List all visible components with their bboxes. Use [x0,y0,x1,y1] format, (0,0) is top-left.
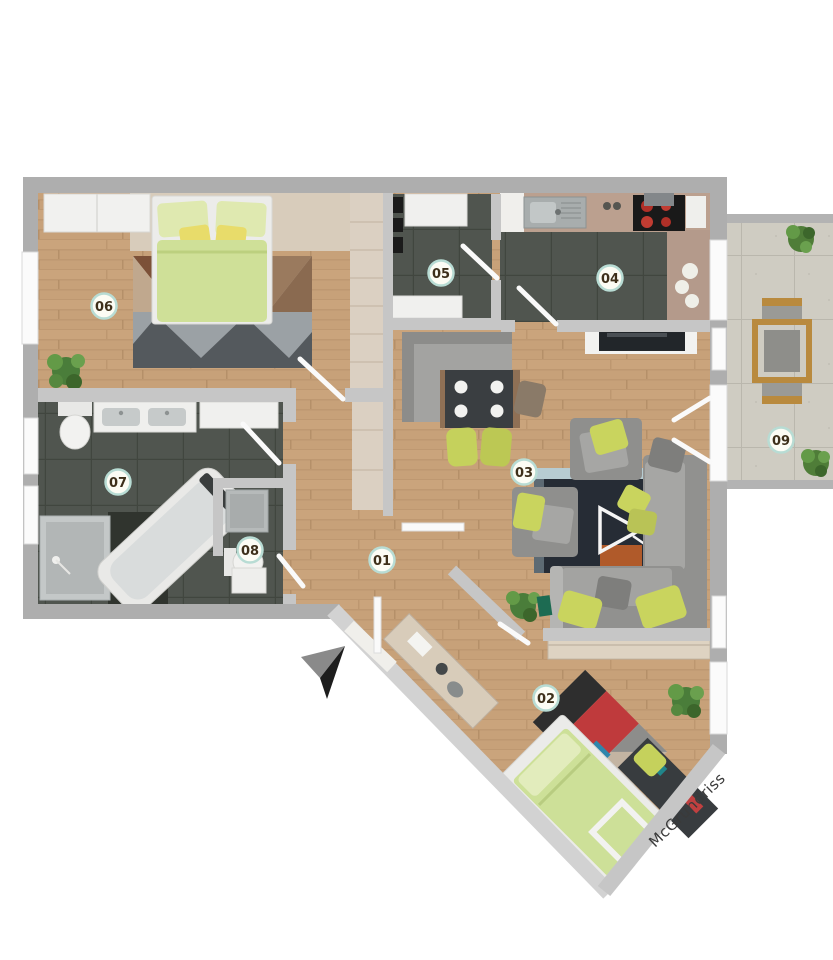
decor-plate [682,263,698,279]
window [710,662,727,734]
door-leaf-living [402,523,464,531]
balcony-door-living [710,385,727,481]
entry-door-leaf [374,597,381,653]
balcony-wall-top [727,214,833,223]
room-number: 06 [95,300,113,315]
north-arrow-icon [301,646,345,699]
wc-basin-cabinet [232,568,266,593]
room-label-06: 06 [92,294,117,319]
room-number: 01 [373,554,391,569]
kitchen-floor [500,230,668,322]
toilet [58,402,92,449]
room-number: 08 [241,544,259,559]
armchair-left [512,487,578,557]
room-label-01: 01 [370,548,395,573]
cabinet [405,194,467,226]
room-number: 02 [537,692,555,707]
decor-plate [685,294,699,308]
room-label-05: 05 [429,261,454,286]
room-label-08: 08 [238,538,263,563]
floor-plan: 01 02 03 04 05 06 07 08 [0,0,833,960]
room-number: 04 [601,272,619,287]
dining-chair-green [479,427,512,467]
dining-table [440,370,520,428]
room-number: 05 [432,267,450,282]
dining-chair-green [446,427,479,467]
double-vanity [94,402,196,432]
pillow-green [626,508,658,536]
room-label-02: 02 [534,686,559,711]
cabinet [686,196,706,228]
plant [47,354,85,390]
window [22,252,38,344]
balcony-wall-bottom [727,480,833,489]
room-number: 09 [772,434,790,449]
room-label-09: 09 [769,428,794,453]
wc-shower [226,490,268,532]
shower [40,516,110,600]
plant [668,684,704,718]
decor-plate [675,280,689,294]
room-label-04: 04 [598,266,623,291]
window [24,418,38,474]
room-label-03: 03 [512,460,537,485]
room-number: 03 [515,466,533,481]
armchair-top [570,418,642,480]
room-number: 07 [109,476,127,491]
hall-wardrobe [352,390,388,510]
cabinet [392,296,462,318]
window [712,596,726,648]
balcony-door-kitchen [710,240,727,320]
window [712,328,726,370]
kitchen-sink [524,197,586,228]
room-label-07: 07 [106,470,131,495]
bathroom-shelf [200,402,278,428]
double-bed [152,196,272,324]
window [24,486,38,544]
